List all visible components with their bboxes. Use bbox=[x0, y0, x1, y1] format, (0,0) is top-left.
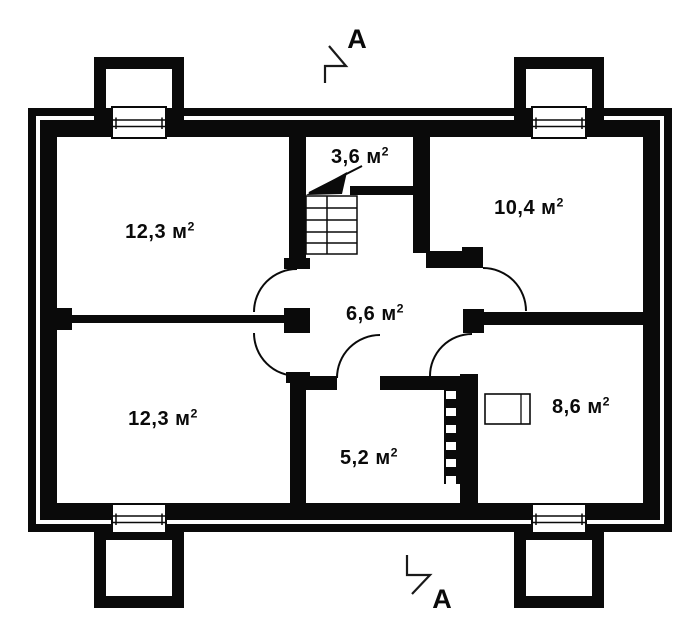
door-arc-top-left-room bbox=[254, 269, 297, 312]
section-marker-bottom-label: A bbox=[424, 584, 460, 615]
door-arc-bottom-left-room bbox=[254, 333, 297, 376]
stairs bbox=[306, 196, 357, 254]
door-arc-bottom-middle-room bbox=[337, 335, 380, 378]
stairs-direction-arrow bbox=[306, 166, 362, 195]
floor-plan: 12,3 м2 3,6 м2 10,4 м2 6,6 м2 12,3 м2 5,… bbox=[0, 0, 700, 642]
door-arc-bottom-right-room bbox=[430, 334, 472, 376]
room-area-label-bottom-middle: 5,2 м2 bbox=[299, 447, 439, 470]
room-area-label-hall: 6,6 м2 bbox=[305, 303, 445, 326]
room-area-label-bottom-left: 12,3 м2 bbox=[93, 408, 233, 431]
room-area-label-bottom-right: 8,6 м2 bbox=[511, 396, 651, 419]
section-marker-top-label: A bbox=[339, 24, 375, 55]
room-area-label-top-right: 10,4 м2 bbox=[459, 197, 599, 220]
door-arc-top-right-room bbox=[483, 268, 526, 311]
room-area-label-staircase: 3,6 м2 bbox=[290, 146, 430, 169]
room-area-label-top-left: 12,3 м2 bbox=[90, 221, 230, 244]
